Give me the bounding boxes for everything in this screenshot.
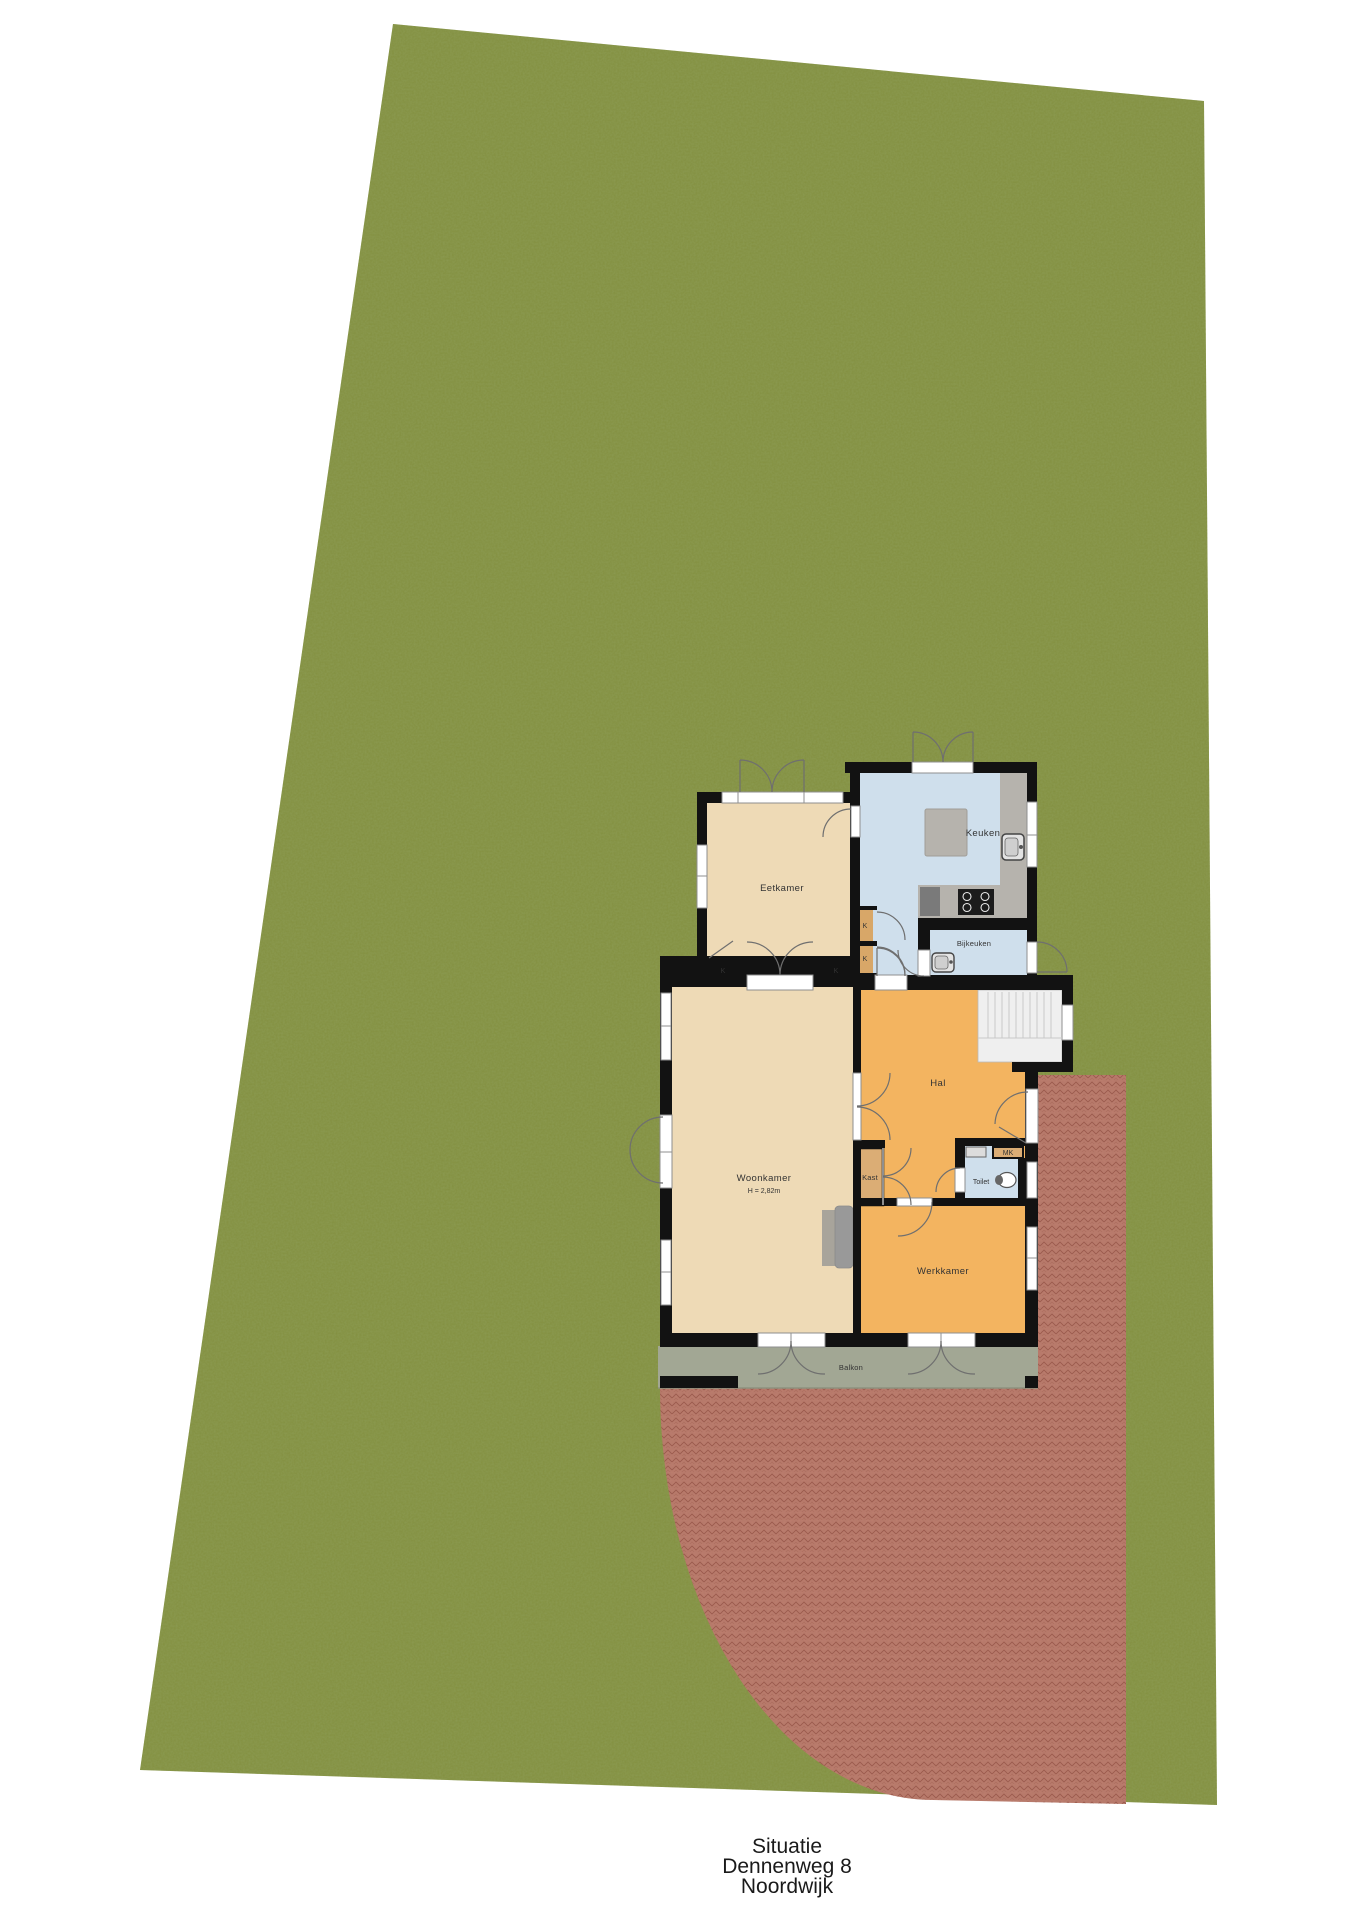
wall-closet-divider-1 — [855, 906, 877, 910]
door-toilet — [955, 1168, 965, 1192]
fireplace — [822, 1206, 853, 1268]
window-stairs-east — [1062, 1005, 1073, 1040]
wall-closet-divider-3 — [855, 973, 877, 977]
wall-keuken-south — [918, 918, 1030, 930]
label-balkon: Balkon — [839, 1363, 863, 1372]
front-door — [1026, 1089, 1038, 1143]
door-werkkamer — [897, 1198, 932, 1206]
double-doors-eetkamer-south — [747, 975, 813, 990]
label-toilet: Toilet — [973, 1179, 989, 1186]
wall-kast-north — [853, 1140, 885, 1148]
label-woonkamer-height: H = 2,82m — [748, 1188, 781, 1195]
toilet-sink-icon — [966, 1147, 986, 1157]
stove-icon — [958, 889, 994, 915]
label-closet-k1: K — [721, 968, 726, 975]
door-bijkeuken-west — [918, 950, 930, 976]
site-plan-svg: Eetkamer Keuken Bijkeuken Hal Woonkamer … — [0, 0, 1358, 1920]
label-eetkamer: Eetkamer — [760, 883, 804, 894]
french-doors-eetkamer-north — [738, 792, 804, 803]
situation-plan-page: Eetkamer Keuken Bijkeuken Hal Woonkamer … — [0, 0, 1358, 1920]
wall-balcony-east-post — [1025, 1376, 1038, 1388]
room-eetkamer-floor — [707, 803, 850, 956]
label-bijkeuken: Bijkeuken — [957, 939, 991, 948]
label-werkkamer: Werkkamer — [917, 1266, 969, 1277]
wall-stairs-south — [1012, 1062, 1073, 1072]
french-doors-keuken-north — [912, 762, 973, 773]
title-line-3: Noordwijk — [741, 1875, 834, 1898]
window-eetkamer-north-left — [722, 792, 738, 803]
door-eetkamer-east — [851, 806, 860, 837]
wall-closet-divider-2 — [855, 941, 877, 946]
wall-balcony-west-stub — [660, 1376, 738, 1388]
room-woonkamer-floor — [672, 987, 853, 1335]
window-toilet-east — [1027, 1162, 1037, 1198]
stairs-floor — [978, 990, 1062, 1062]
door-passage-to-hal — [875, 975, 907, 990]
label-kast: Kast — [862, 1173, 879, 1182]
appliance-block — [920, 887, 940, 916]
bijkeuken-sink-icon — [932, 953, 954, 972]
label-closet-k4: K — [863, 956, 868, 963]
label-meterkast: MK — [1003, 1150, 1014, 1157]
kitchen-island — [925, 809, 967, 856]
door-bijkeuken-east-exterior — [1027, 942, 1037, 973]
wall-woonkamer-east — [853, 987, 861, 1335]
label-closet-k3: K — [863, 923, 868, 930]
window-eetkamer-north-right — [804, 792, 843, 803]
label-woonkamer: Woonkamer — [737, 1173, 792, 1184]
kitchen-sink-icon — [1002, 834, 1024, 860]
label-hal: Hal — [930, 1078, 945, 1089]
wall-werkkamer-north — [853, 1198, 1038, 1206]
label-closet-k2: K — [834, 968, 839, 975]
wall-bijkeuken-west — [918, 918, 930, 952]
label-keuken: Keuken — [966, 828, 1001, 839]
